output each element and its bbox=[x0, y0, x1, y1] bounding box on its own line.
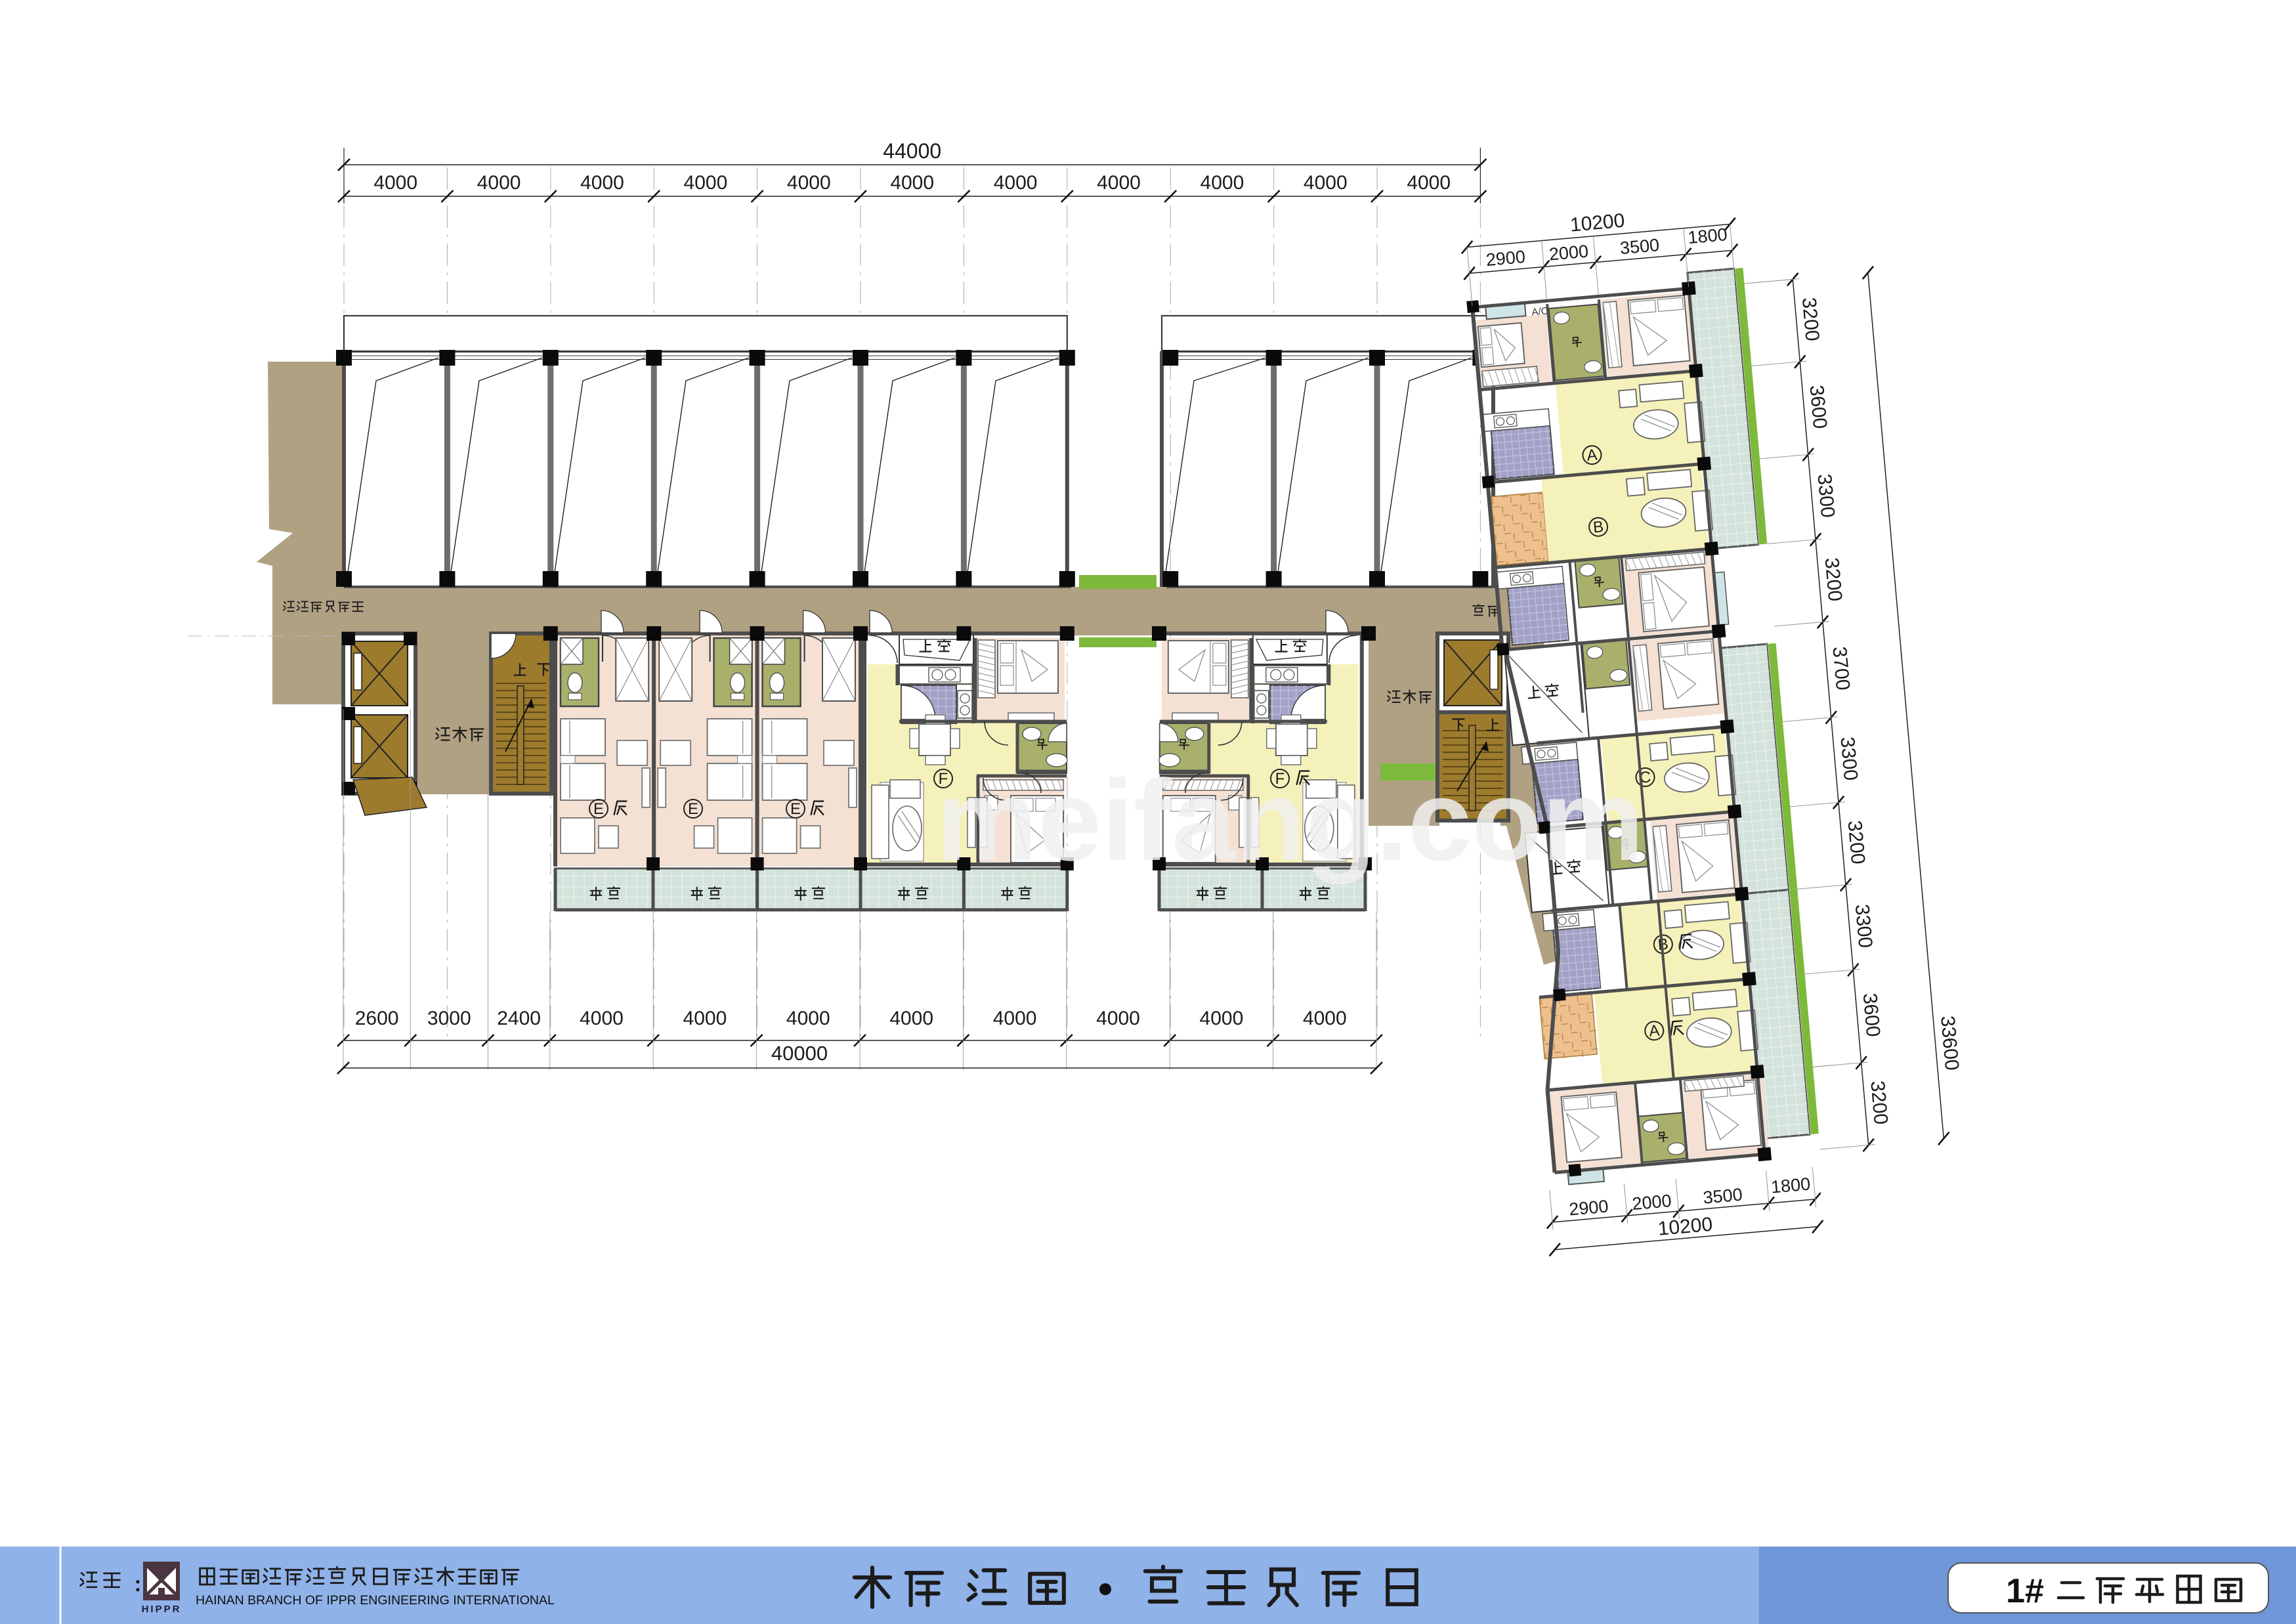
svg-text::: : bbox=[135, 1572, 142, 1596]
svg-text:4000: 4000 bbox=[1407, 172, 1451, 194]
svg-text:3000: 3000 bbox=[427, 1008, 471, 1029]
svg-text:3600: 3600 bbox=[1806, 384, 1831, 429]
svg-text:4000: 4000 bbox=[373, 172, 417, 194]
svg-text:2400: 2400 bbox=[497, 1008, 541, 1029]
svg-text:A: A bbox=[1586, 446, 1598, 465]
svg-text:4000: 4000 bbox=[993, 1008, 1037, 1029]
svg-text:4000: 4000 bbox=[786, 1008, 830, 1029]
svg-text:4000: 4000 bbox=[1097, 172, 1141, 194]
svg-text:4000: 4000 bbox=[890, 172, 934, 194]
svg-text:E: E bbox=[688, 800, 698, 818]
svg-text:33600: 33600 bbox=[1936, 1015, 1963, 1071]
svg-text:3300: 3300 bbox=[1851, 903, 1877, 949]
svg-text:10200: 10200 bbox=[1657, 1214, 1713, 1240]
svg-text:2000: 2000 bbox=[1548, 242, 1589, 265]
svg-text:10200: 10200 bbox=[1569, 210, 1626, 236]
svg-text:A: A bbox=[1648, 1022, 1660, 1040]
svg-text:3200: 3200 bbox=[1821, 557, 1846, 602]
svg-text:4000: 4000 bbox=[1304, 172, 1348, 194]
svg-text:40000: 40000 bbox=[771, 1042, 828, 1065]
svg-text:3700: 3700 bbox=[1828, 646, 1854, 691]
svg-text:4000: 4000 bbox=[580, 1008, 624, 1029]
svg-text:2900: 2900 bbox=[1568, 1196, 1609, 1219]
svg-text:4000: 4000 bbox=[889, 1008, 933, 1029]
svg-text:4000: 4000 bbox=[477, 172, 521, 194]
svg-text:4000: 4000 bbox=[787, 172, 831, 194]
svg-text:E: E bbox=[790, 800, 801, 818]
svg-text:meifang.com: meifang.com bbox=[935, 757, 1644, 885]
svg-text:4000: 4000 bbox=[683, 1008, 727, 1029]
svg-text:B: B bbox=[1592, 518, 1604, 536]
svg-text:4000: 4000 bbox=[1200, 1008, 1244, 1029]
svg-text:HIPPR: HIPPR bbox=[142, 1604, 182, 1615]
svg-text:4000: 4000 bbox=[684, 172, 728, 194]
svg-text:44000: 44000 bbox=[883, 139, 941, 163]
svg-text:E: E bbox=[593, 800, 604, 818]
svg-text:A/C: A/C bbox=[1531, 305, 1549, 318]
svg-text:1#: 1# bbox=[2006, 1572, 2044, 1610]
svg-text:2000: 2000 bbox=[1631, 1191, 1672, 1214]
svg-text:3200: 3200 bbox=[1866, 1080, 1892, 1125]
svg-text:4000: 4000 bbox=[1096, 1008, 1140, 1029]
svg-text:3200: 3200 bbox=[1844, 820, 1869, 865]
svg-text:3300: 3300 bbox=[1813, 473, 1839, 519]
svg-text:3500: 3500 bbox=[1702, 1185, 1743, 1208]
svg-text:1800: 1800 bbox=[1687, 224, 1728, 247]
svg-text:4000: 4000 bbox=[1303, 1008, 1347, 1029]
svg-text:3200: 3200 bbox=[1798, 297, 1823, 342]
svg-text:4000: 4000 bbox=[580, 172, 624, 194]
svg-text:4000: 4000 bbox=[994, 172, 1038, 194]
svg-text:2600: 2600 bbox=[355, 1008, 399, 1029]
svg-text:1800: 1800 bbox=[1770, 1174, 1811, 1197]
svg-text:3600: 3600 bbox=[1859, 993, 1884, 1038]
svg-text:3300: 3300 bbox=[1836, 736, 1861, 781]
svg-text:3500: 3500 bbox=[1619, 235, 1660, 258]
svg-text:2900: 2900 bbox=[1485, 247, 1526, 270]
svg-text:4000: 4000 bbox=[1201, 172, 1244, 194]
svg-text:HAINAN BRANCH OF IPPR ENGINEER: HAINAN BRANCH OF IPPR ENGINEERING INTERN… bbox=[196, 1593, 555, 1608]
